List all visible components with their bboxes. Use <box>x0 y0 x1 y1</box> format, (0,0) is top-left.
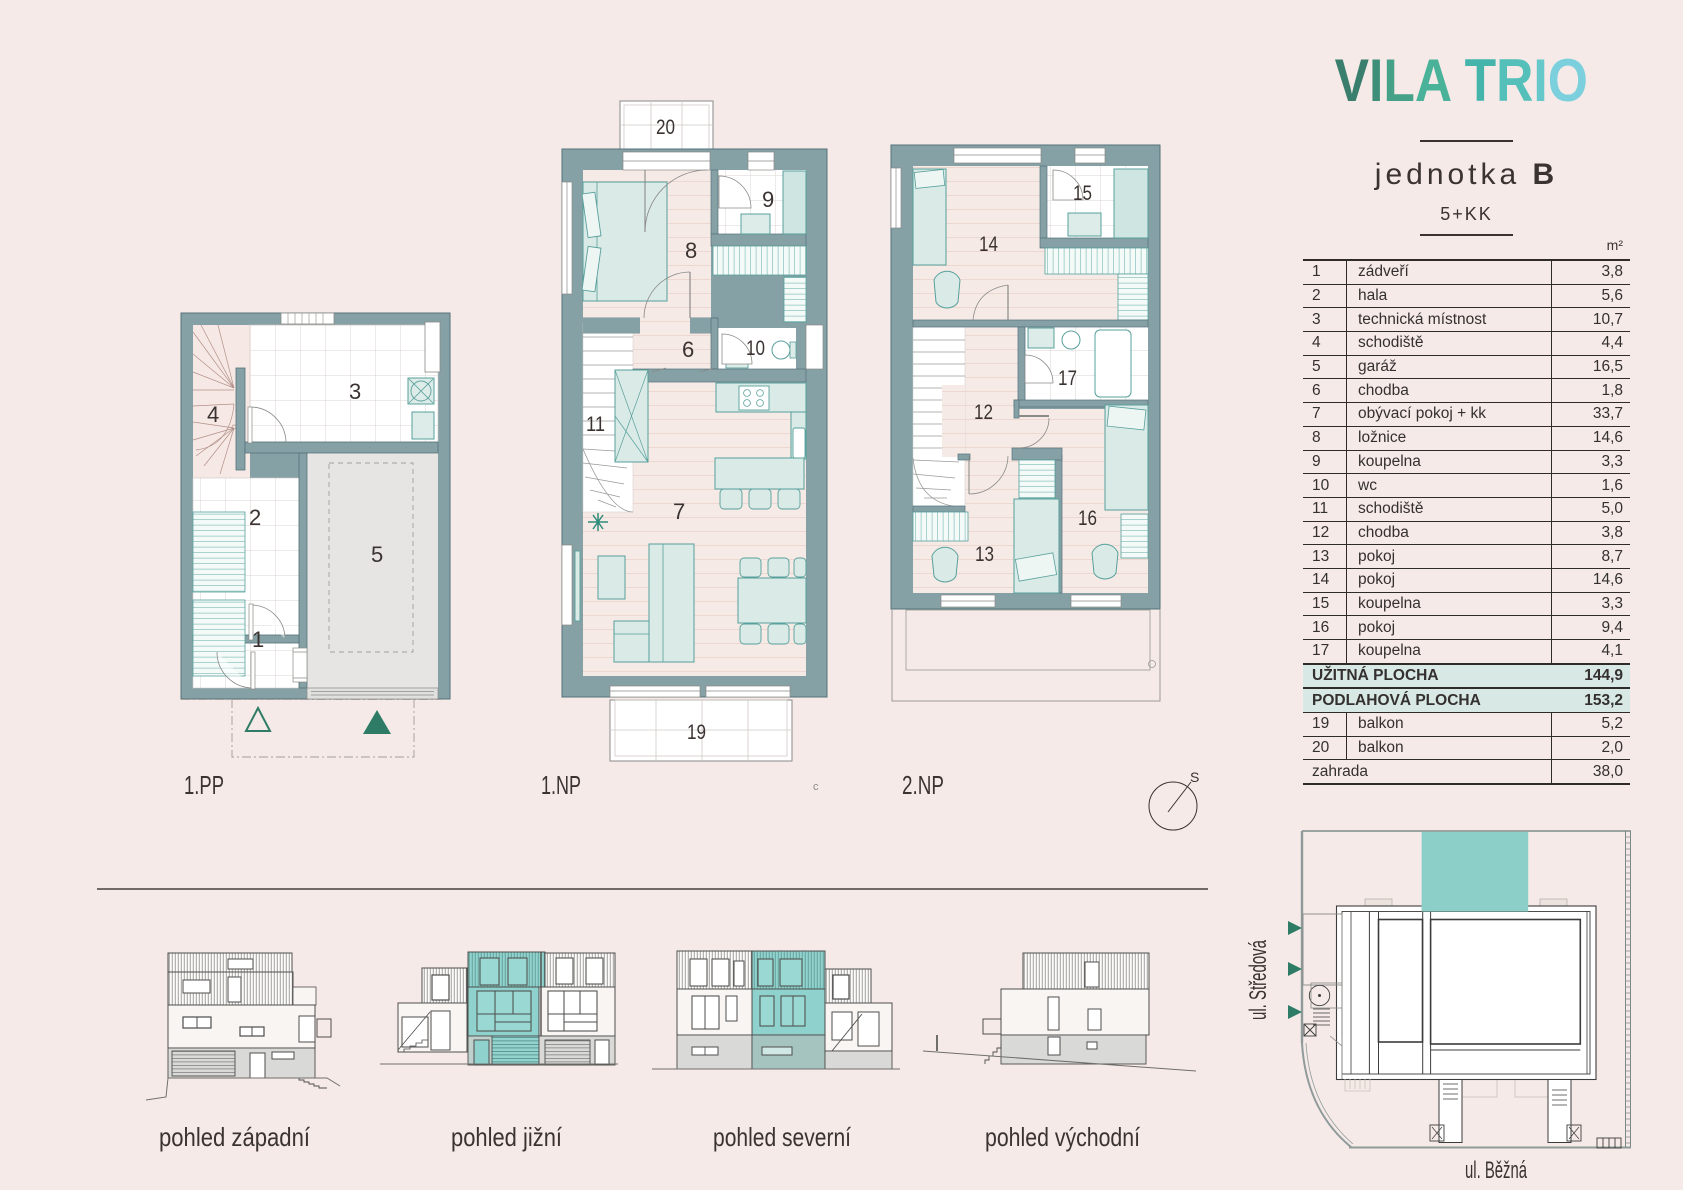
svg-text:pohled východní: pohled východní <box>985 1122 1141 1152</box>
svg-text:10: 10 <box>746 337 765 360</box>
svg-text:15: 15 <box>1073 182 1092 205</box>
svg-text:ul. Běžná: ul. Běžná <box>1465 1157 1527 1184</box>
svg-text:19: 19 <box>687 721 706 744</box>
svg-text:6: 6 <box>682 337 694 362</box>
svg-text:3: 3 <box>349 379 361 404</box>
svg-text:pohled severní: pohled severní <box>713 1122 852 1152</box>
svg-text:8: 8 <box>685 238 697 263</box>
svg-text:7: 7 <box>673 499 685 524</box>
svg-text:1.PP: 1.PP <box>184 770 224 800</box>
svg-text:2: 2 <box>249 505 261 530</box>
svg-text:9: 9 <box>762 187 774 212</box>
svg-text:17: 17 <box>1058 367 1077 390</box>
svg-text:5: 5 <box>371 542 383 567</box>
svg-text:11: 11 <box>586 413 605 436</box>
svg-text:pohled jižní: pohled jižní <box>451 1122 563 1152</box>
svg-text:1.NP: 1.NP <box>541 770 581 800</box>
svg-text:ul. Středová: ul. Středová <box>1245 940 1272 1020</box>
svg-text:2.NP: 2.NP <box>902 770 944 800</box>
svg-text:4: 4 <box>207 402 219 427</box>
svg-text:16: 16 <box>1078 507 1097 530</box>
svg-text:13: 13 <box>975 543 994 566</box>
svg-text:12: 12 <box>974 401 993 424</box>
svg-text:14: 14 <box>979 233 998 256</box>
svg-text:pohled západní: pohled západní <box>159 1122 311 1152</box>
svg-text:1: 1 <box>252 627 264 652</box>
svg-text:20: 20 <box>656 116 675 139</box>
svg-text:S: S <box>1190 769 1199 785</box>
svg-text:c: c <box>813 781 819 793</box>
